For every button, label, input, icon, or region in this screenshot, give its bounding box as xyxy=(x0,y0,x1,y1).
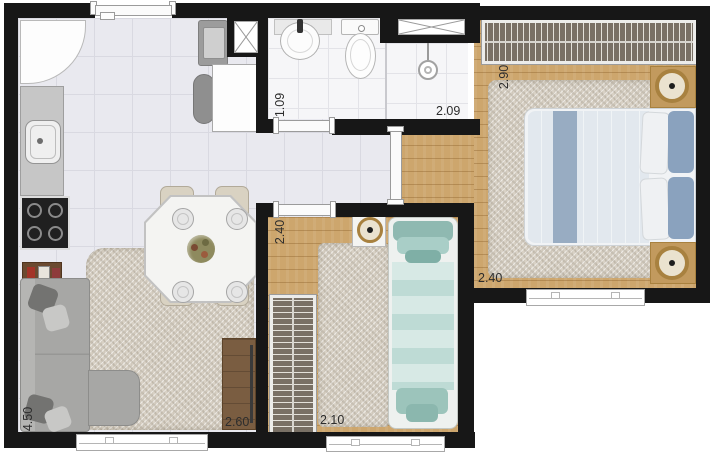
dim-bedroom2-width: 2.10 xyxy=(320,414,344,427)
window-tick xyxy=(411,439,420,446)
bed-pillow-white xyxy=(639,111,670,174)
stove xyxy=(20,196,70,250)
bed-pillow-blue xyxy=(668,177,694,239)
lamp-icon xyxy=(357,217,383,243)
wall xyxy=(256,203,268,448)
window-tick xyxy=(351,439,360,446)
window-mullion xyxy=(79,443,205,444)
bedroom2-door xyxy=(278,204,331,216)
wall xyxy=(470,6,710,20)
window-mullion xyxy=(529,298,642,299)
bathroom-door xyxy=(278,120,330,132)
sink-basin xyxy=(30,125,56,159)
bed-pillow-teal xyxy=(405,250,441,263)
bed-pillow-white xyxy=(639,177,670,240)
flower-icon xyxy=(202,239,209,246)
wall xyxy=(696,6,710,303)
dim-bedroom2-depth: 2.40 xyxy=(274,220,287,244)
bedroom2-wardrobe xyxy=(270,295,316,435)
burner-icon xyxy=(48,203,63,218)
bedroom2-rug xyxy=(318,243,390,427)
plate-icon xyxy=(172,208,194,230)
duct-shaft xyxy=(234,21,258,53)
shower-drain-icon xyxy=(418,60,438,80)
wall xyxy=(458,203,474,448)
plate-icon xyxy=(226,208,248,230)
window-tick xyxy=(611,292,620,299)
plate-icon xyxy=(226,281,248,303)
tank-basin xyxy=(203,27,225,59)
floor-plan: 1.09 2.09 2.90 2.40 2.40 2.10 4.50 2.60 xyxy=(0,0,719,457)
kitchen-sink xyxy=(25,120,61,164)
bowl xyxy=(350,39,371,71)
window-mullion xyxy=(329,444,442,445)
dim-bedroom1-width: 2.40 xyxy=(478,272,502,285)
bathroom-window xyxy=(398,19,465,35)
wall xyxy=(332,119,480,135)
lamp-icon xyxy=(655,69,689,103)
wall xyxy=(172,3,380,18)
hall-door xyxy=(390,131,402,200)
laundry-tank xyxy=(198,20,228,66)
sink-faucet-icon xyxy=(37,138,43,144)
lamp-icon xyxy=(655,246,689,280)
plate-icon xyxy=(172,281,194,303)
toilet-bowl xyxy=(345,33,376,79)
tv-icon xyxy=(250,345,253,423)
living-window xyxy=(76,434,208,451)
dim-bathroom-depth: 1.09 xyxy=(274,93,287,117)
centerpiece-flowers-icon xyxy=(187,235,215,263)
dim-bedroom1-depth: 2.90 xyxy=(498,65,511,89)
shower-divider xyxy=(385,43,387,119)
washing-machine xyxy=(212,64,258,132)
window-tick xyxy=(169,437,178,444)
bedroom1-wardrobe xyxy=(482,20,696,64)
bed-blanket xyxy=(392,262,454,390)
foot-cushion xyxy=(406,404,438,422)
flush-button-icon xyxy=(358,25,365,32)
dim-bathroom-width: 2.09 xyxy=(436,105,460,118)
bedroom1-window xyxy=(526,289,645,306)
bedroom2-window xyxy=(326,436,445,452)
sofa-chaise xyxy=(88,370,140,426)
bed-pillow-blue xyxy=(668,111,694,173)
decor-icon xyxy=(52,268,60,278)
window-tick xyxy=(551,292,560,299)
flower-icon xyxy=(191,244,198,251)
burner-icon xyxy=(48,226,63,241)
dim-living-depth: 4.50 xyxy=(22,407,35,431)
burner-icon xyxy=(27,226,42,241)
window-tick xyxy=(105,437,114,444)
drain-ring xyxy=(424,66,432,74)
wall xyxy=(333,203,474,217)
door-latch xyxy=(100,12,115,20)
flower-icon xyxy=(201,251,208,258)
burner-icon xyxy=(27,203,42,218)
sink-faucet-icon xyxy=(297,19,303,33)
dim-living-width: 2.60 xyxy=(225,416,249,429)
bed-blanket xyxy=(527,111,649,243)
wall xyxy=(4,3,18,448)
